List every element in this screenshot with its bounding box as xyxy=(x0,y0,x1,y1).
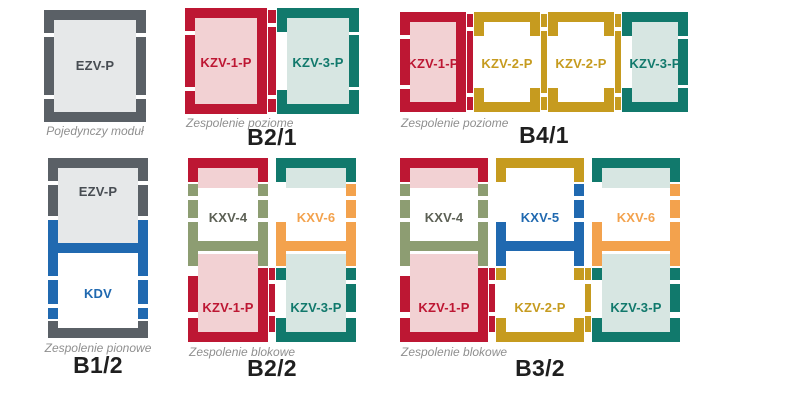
h-connector-bar xyxy=(48,220,58,276)
connector-bar xyxy=(269,316,275,332)
frame-bar xyxy=(530,22,540,36)
frame-bar xyxy=(44,99,54,112)
module-label: KDV xyxy=(48,286,148,301)
frame-bar xyxy=(400,332,488,342)
modules-grid: EZV-P xyxy=(44,10,146,122)
module-fill xyxy=(198,254,258,332)
connector-bar xyxy=(541,14,547,27)
frame-bar xyxy=(188,168,198,182)
connector-bar xyxy=(489,268,495,280)
module-fill xyxy=(410,254,478,332)
connector-bar xyxy=(268,10,276,23)
connector-bar xyxy=(585,316,591,332)
module-label: KZV-2-P xyxy=(496,300,584,315)
connector-bar xyxy=(489,316,495,332)
frame-bar xyxy=(136,20,146,33)
frame-bar xyxy=(138,168,148,181)
frame-bar xyxy=(474,88,484,102)
frame-bar xyxy=(185,18,195,31)
frame-bar xyxy=(349,18,359,32)
frame-bar xyxy=(548,22,558,36)
frame-bar xyxy=(185,91,195,104)
connector-bar xyxy=(541,31,547,93)
diagram-stage: EZV-P Pojedynczy moduł KZV-1-PKZV-3-P Ze… xyxy=(0,0,800,400)
h-connector-bar xyxy=(276,241,356,251)
connector-bar xyxy=(269,284,275,312)
panel-caption: Pojedynczy moduł xyxy=(24,124,166,138)
module-label: EZV-P xyxy=(48,184,148,199)
connector-bar xyxy=(585,268,591,280)
frame-bar xyxy=(258,168,268,182)
frame-bar xyxy=(574,268,584,280)
connector-bar xyxy=(489,284,495,312)
h-connector-bar xyxy=(496,241,584,251)
module-label: KZV-3-P xyxy=(622,56,688,71)
frame-bar xyxy=(622,102,688,112)
frame-bar xyxy=(622,88,632,102)
module-label: KXV-5 xyxy=(496,210,584,225)
module-band xyxy=(286,168,346,188)
module-fill xyxy=(602,254,670,332)
frame-bar xyxy=(400,12,466,22)
module-band xyxy=(410,168,478,188)
frame-bar xyxy=(48,321,58,328)
connector-bar xyxy=(467,31,473,93)
frame-bar xyxy=(400,318,410,332)
connector-bar xyxy=(615,14,621,27)
frame-bar xyxy=(604,22,614,36)
module-label: KZV-1-P xyxy=(188,300,268,315)
frame-bar xyxy=(44,112,146,122)
connector-bar xyxy=(467,14,473,27)
connector-bar xyxy=(541,97,547,110)
module-label: KXV-6 xyxy=(276,210,356,225)
frame-bar xyxy=(678,88,688,102)
connector-bar xyxy=(615,97,621,110)
module-fill xyxy=(506,254,574,332)
frame-bar xyxy=(276,168,286,182)
frame-bar xyxy=(478,184,488,196)
frame-bar xyxy=(48,158,148,168)
panel-title: B4/1 xyxy=(400,122,688,149)
frame-bar xyxy=(622,12,688,22)
frame-bar xyxy=(188,158,268,168)
frame-bar xyxy=(188,332,268,342)
frame-bar xyxy=(678,22,688,36)
panel-title: B2/2 xyxy=(188,355,356,382)
frame-bar xyxy=(574,318,584,332)
frame-bar xyxy=(670,184,680,196)
frame-bar xyxy=(592,168,602,182)
frame-bar xyxy=(400,22,410,35)
frame-bar xyxy=(349,90,359,104)
panel-title: B3/2 xyxy=(400,355,680,382)
frame-bar xyxy=(496,332,584,342)
panel-title: B1/2 xyxy=(28,352,168,379)
frame-bar xyxy=(400,184,410,196)
frame-bar xyxy=(474,102,540,112)
frame-bar xyxy=(400,158,488,168)
frame-bar xyxy=(592,268,602,280)
module-label: KZV-1-P xyxy=(400,300,488,315)
frame-bar xyxy=(530,88,540,102)
frame-bar xyxy=(346,268,356,280)
module-band xyxy=(602,168,670,188)
modules-grid: EZV-PKDV xyxy=(48,158,148,338)
module-label: KXV-4 xyxy=(188,210,268,225)
frame-bar xyxy=(574,184,584,196)
frame-bar xyxy=(400,102,466,112)
frame-bar xyxy=(258,184,268,196)
frame-bar xyxy=(670,318,680,332)
h-connector-bar xyxy=(48,243,148,253)
frame-bar xyxy=(276,268,286,280)
frame-bar xyxy=(604,88,614,102)
frame-bar xyxy=(136,99,146,112)
h-connector-bar xyxy=(400,241,488,251)
frame-bar xyxy=(548,88,558,102)
modules-grid: KZV-1-PKZV-2-PKZV-2-PKZV-3-P xyxy=(400,12,688,112)
module-band xyxy=(198,168,258,188)
frame-bar xyxy=(276,158,356,168)
frame-bar xyxy=(276,332,356,342)
frame-bar xyxy=(138,308,148,319)
frame-bar xyxy=(276,318,286,332)
frame-bar xyxy=(592,318,602,332)
modules-grid: KXV-4KXV-6KZV-1-PKZV-3-P xyxy=(188,158,356,342)
frame-bar xyxy=(622,22,632,36)
connector-bar xyxy=(268,99,276,112)
frame-bar xyxy=(188,318,198,332)
frame-bar xyxy=(346,318,356,332)
frame-bar xyxy=(44,10,146,20)
module-label: KZV-2-P xyxy=(548,56,614,71)
module-fill xyxy=(58,168,138,243)
frame-bar xyxy=(548,12,614,22)
frame-bar xyxy=(346,184,356,196)
module-label: KZV-2-P xyxy=(474,56,540,71)
h-connector-bar xyxy=(592,241,680,251)
module-label: EZV-P xyxy=(44,58,146,73)
frame-bar xyxy=(48,168,58,181)
module-label: KZV-1-P xyxy=(400,56,466,71)
frame-bar xyxy=(44,20,54,33)
frame-bar xyxy=(670,168,680,182)
module-label: KZV-3-P xyxy=(277,55,359,70)
module-label: KXV-6 xyxy=(592,210,680,225)
frame-bar xyxy=(496,168,506,182)
frame-bar xyxy=(496,268,506,280)
modules-grid: KZV-1-PKZV-3-P xyxy=(185,8,359,114)
frame-bar xyxy=(48,308,58,319)
connector-bar xyxy=(467,97,473,110)
frame-bar xyxy=(400,89,410,102)
panel-title: B2/1 xyxy=(185,124,359,151)
frame-bar xyxy=(138,321,148,328)
frame-bar xyxy=(496,318,506,332)
frame-bar xyxy=(548,102,614,112)
h-connector-bar xyxy=(188,241,268,251)
module-label: KZV-3-P xyxy=(276,300,356,315)
frame-bar xyxy=(48,328,148,338)
frame-bar xyxy=(277,104,359,114)
frame-bar xyxy=(478,168,488,182)
frame-bar xyxy=(277,90,287,104)
frame-bar xyxy=(277,18,287,32)
frame-bar xyxy=(574,168,584,182)
connector-bar xyxy=(585,284,591,312)
module-label: KXV-4 xyxy=(400,210,488,225)
frame-bar xyxy=(474,12,540,22)
h-connector-bar xyxy=(138,220,148,276)
connector-bar xyxy=(615,31,621,93)
frame-bar xyxy=(185,104,267,114)
frame-bar xyxy=(496,158,584,168)
frame-bar xyxy=(592,158,680,168)
connector-bar xyxy=(269,268,275,280)
connector-bar xyxy=(268,27,276,95)
frame-bar xyxy=(592,332,680,342)
frame-bar xyxy=(346,168,356,182)
frame-bar xyxy=(400,168,410,182)
module-fill xyxy=(286,254,346,332)
module-label: KZV-3-P xyxy=(592,300,680,315)
frame-bar xyxy=(670,268,680,280)
module-label: KZV-1-P xyxy=(185,55,267,70)
frame-bar xyxy=(277,8,359,18)
frame-bar xyxy=(185,8,267,18)
frame-bar xyxy=(474,22,484,36)
modules-grid: KXV-4KXV-5KXV-6KZV-1-PKZV-2-PKZV-3-P xyxy=(400,158,680,342)
frame-bar xyxy=(188,184,198,196)
